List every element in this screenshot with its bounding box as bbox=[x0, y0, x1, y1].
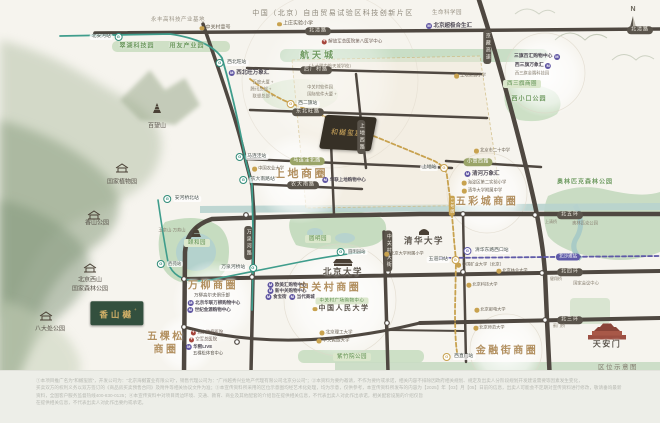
project-name: 和樾玺宸 bbox=[330, 127, 364, 139]
park-aosen bbox=[544, 187, 660, 260]
project-badge-sup: + bbox=[134, 307, 137, 312]
road-xueyuan-line bbox=[463, 214, 466, 362]
project-badge-xiangshanyue: 香山樾+ bbox=[90, 301, 143, 325]
tsinghua-gate-icon bbox=[419, 229, 429, 235]
project-name-sup: + bbox=[362, 131, 365, 136]
road-beiqinglu bbox=[95, 29, 660, 33]
road-beisanhuan-line bbox=[420, 318, 660, 323]
project-block: 和樾玺宸+ bbox=[319, 115, 377, 152]
disclaimer-line-4: 在提供相关信息，不代表出卖人对此作出要约或承诺。 bbox=[36, 399, 626, 406]
project-badge-name: 香山樾 bbox=[99, 309, 134, 319]
map-canvas bbox=[0, 0, 660, 423]
location-map: 和樾玺宸+ 香山樾+ 区位示意图 N永丰高科技产业基地中关村壹号中国（北京）自由… bbox=[0, 0, 660, 423]
tiananmen-icon bbox=[588, 324, 626, 340]
disclaimer-text: ①本项目推广名为“和樾玺宸”，开发公司为：“北京海樾置业有限公司”，销售代理公司… bbox=[36, 377, 626, 407]
disclaimer-line-3: 资料，全国客户服务监督热线400-830-0125；④本宣传资料中对项目周边环境… bbox=[36, 392, 626, 399]
footer-disclaimer-bar: ①本项目推广名为“和樾玺宸”，开发公司为：“北京海樾置业有限公司”，销售代理公司… bbox=[0, 370, 660, 423]
pku-gate-icon bbox=[333, 259, 353, 266]
disclaimer-line-2: 买卖双方的权利义务以双方签订的《商品房买卖预售合同》及附件等相关协议文件为准；③… bbox=[36, 384, 626, 391]
road-zhichun-line bbox=[388, 330, 464, 331]
disclaimer-line-1: ①本项目推广名为“和樾玺宸”，开发公司为：“北京海樾置业有限公司”，销售代理公司… bbox=[36, 377, 626, 384]
